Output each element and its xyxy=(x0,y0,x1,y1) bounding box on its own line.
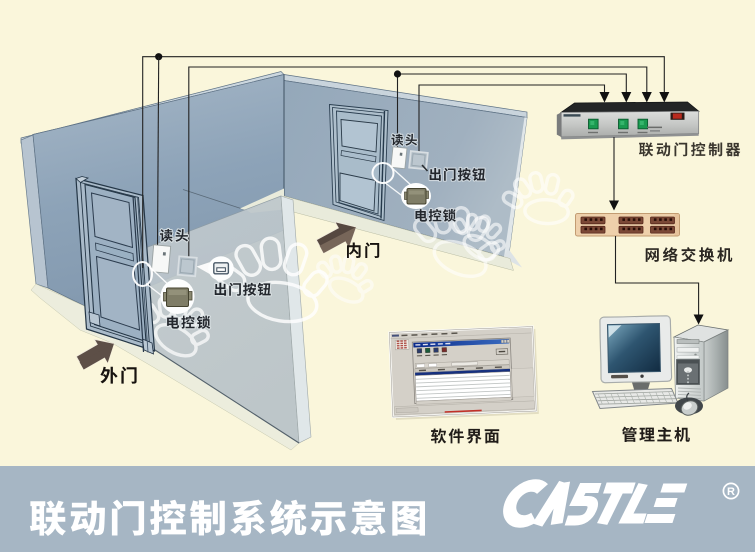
svg-text:R: R xyxy=(727,486,735,498)
